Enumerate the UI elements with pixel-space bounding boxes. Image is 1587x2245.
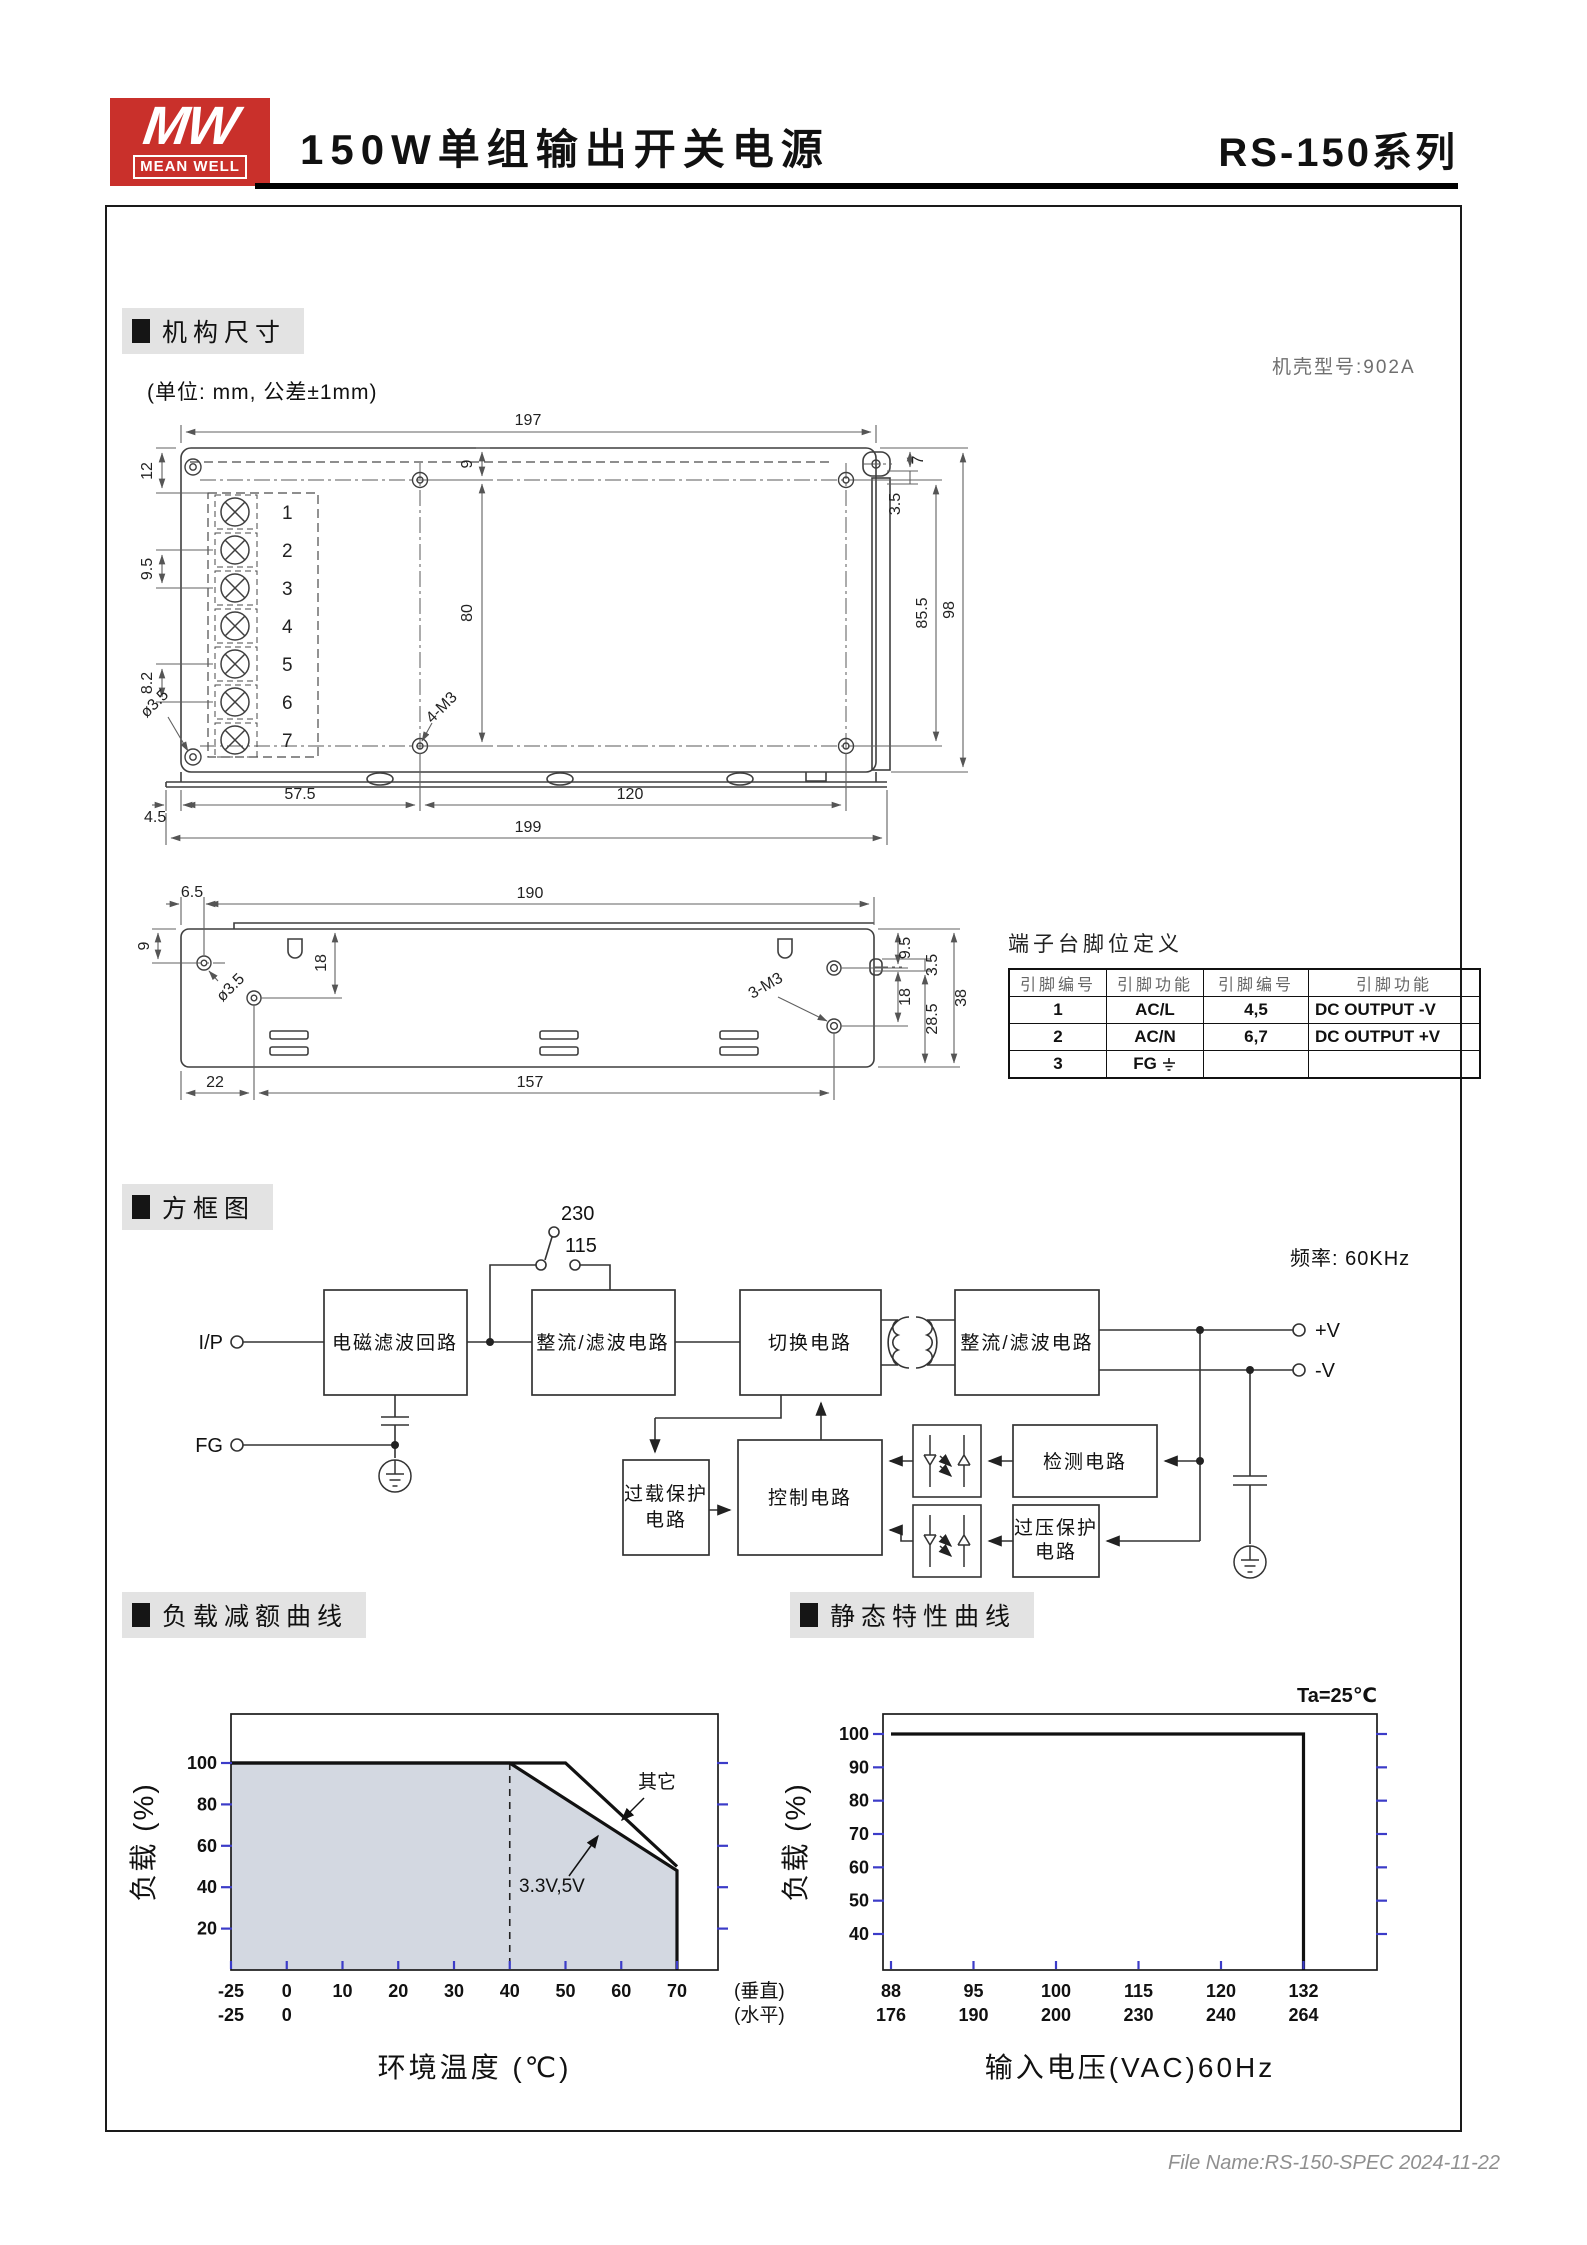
svg-text:100: 100	[839, 1724, 869, 1744]
block-ovp-label2: 电路	[1035, 1541, 1077, 1563]
svg-text:50: 50	[849, 1891, 869, 1911]
mechanical-drawing-top: 1 2 3 4 5 6 7	[130, 405, 990, 875]
pin-cell	[1309, 1051, 1481, 1079]
svg-text:264: 264	[1288, 2005, 1318, 2025]
svg-text:30: 30	[444, 1981, 464, 2001]
svg-text:环境温度 (℃): 环境温度 (℃)	[378, 2052, 572, 2083]
pin-cell: 1	[1009, 997, 1107, 1024]
svg-text:-25: -25	[218, 1981, 244, 2001]
dim-9-5: 9.5	[139, 558, 156, 580]
svg-text:0: 0	[282, 2005, 292, 2025]
block-control-label: 控制电路	[768, 1487, 852, 1509]
dim-157: 157	[517, 1074, 544, 1091]
svg-text:80: 80	[849, 1791, 869, 1811]
dim-57-5: 57.5	[284, 786, 315, 803]
optocoupler-icon	[913, 1505, 981, 1577]
pin-cell-fg: FG	[1107, 1051, 1204, 1079]
pin-table-title: 端子台脚位定义	[1008, 928, 1481, 958]
optocoupler-icon	[913, 1425, 981, 1497]
section-mech-title: 机构尺寸	[162, 313, 286, 349]
pin-cell: DC OUTPUT -V	[1309, 997, 1481, 1024]
svg-text:60: 60	[197, 1836, 217, 1856]
svg-text:100: 100	[187, 1753, 217, 1773]
dimension-labels-side: 6.5 190 9 18 ø3.5 3-M3 9.5 18 3.5 28.5 3…	[136, 885, 970, 1091]
block-switching-label: 切换电路	[768, 1332, 852, 1354]
svg-text:40: 40	[197, 1877, 217, 1897]
pin-table: 引脚编号 引脚功能 引脚编号 引脚功能 1 AC/L 4,5 DC OUTPUT…	[1008, 968, 1481, 1079]
dim-38: 38	[953, 989, 970, 1007]
pin-table-header: 引脚功能	[1107, 969, 1204, 997]
vminus-label: -V	[1315, 1360, 1336, 1382]
svg-text:70: 70	[849, 1824, 869, 1844]
mech-unit-note: (单位: mm, 公差±1mm)	[147, 376, 378, 406]
svg-text:120: 120	[1206, 1981, 1236, 2001]
dim-9-5-side: 9.5	[897, 937, 914, 959]
header-rule	[255, 183, 1458, 189]
svg-text:10: 10	[332, 1981, 352, 2001]
series-title: RS-150系列	[1218, 120, 1458, 178]
block-detect-label: 检测电路	[1043, 1451, 1127, 1473]
block-ovp-label1: 过压保护	[1014, 1517, 1098, 1539]
svg-text:90: 90	[849, 1757, 869, 1777]
svg-text:240: 240	[1206, 2005, 1236, 2025]
svg-text:200: 200	[1041, 2005, 1071, 2025]
svg-text:132: 132	[1288, 1981, 1318, 2001]
pin-cell: DC OUTPUT +V	[1309, 1024, 1481, 1051]
pin-cell: AC/N	[1107, 1024, 1204, 1051]
dim-85-5: 85.5	[914, 597, 931, 628]
dim-7: 7	[910, 455, 927, 464]
svg-text:190: 190	[958, 2005, 988, 2025]
fg-label: FG	[1133, 1054, 1157, 1073]
dim-22: 22	[206, 1074, 224, 1091]
svg-text:50: 50	[555, 1981, 575, 2001]
terminal-number: 5	[282, 655, 293, 676]
block-overload-label1: 过载保护	[624, 1483, 708, 1505]
earth-ground-icon	[1234, 1546, 1266, 1578]
svg-text:80: 80	[197, 1794, 217, 1814]
svg-text:负载 (%): 负载 (%)	[128, 1782, 159, 1901]
dim-197: 197	[515, 412, 542, 429]
dim-80: 80	[459, 604, 476, 622]
case-outline-side	[181, 923, 882, 1067]
svg-text:100: 100	[1041, 1981, 1071, 2001]
center-lines	[200, 463, 892, 763]
svg-text:60: 60	[611, 1981, 631, 2001]
svg-text:60: 60	[849, 1857, 869, 1877]
dim-hole-callout-side: ø3.5	[213, 970, 248, 1005]
svg-text:88: 88	[881, 1981, 901, 2001]
svg-text:176: 176	[876, 2005, 906, 2025]
transformer-icon	[888, 1317, 937, 1368]
terminal-number: 1	[282, 503, 293, 524]
mechanical-drawing-side: 6.5 190 9 18 ø3.5 3-M3 9.5 18 3.5 28.5 3…	[130, 885, 1010, 1120]
meanwell-logo: MW MEAN WELL	[110, 98, 270, 186]
pin-table-wrap: 端子台脚位定义 引脚编号 引脚功能 引脚编号 引脚功能 1 AC/L 4,5 D…	[1008, 928, 1481, 1079]
derating-chart-svg: 20406080100-25-250010203040506070(垂直)(水平…	[95, 1580, 795, 2130]
earth-ground-icon	[1161, 1057, 1177, 1071]
pin-table-header: 引脚编号	[1204, 969, 1309, 997]
terminal-number: 7	[282, 731, 293, 752]
svg-text:40: 40	[500, 1981, 520, 2001]
fg-label: FG	[195, 1435, 223, 1457]
dim-9-side: 9	[136, 941, 153, 950]
dim-18-right: 18	[897, 988, 914, 1006]
dim-4-5: 4.5	[144, 809, 166, 826]
dim-120: 120	[617, 786, 644, 803]
svg-text:95: 95	[963, 1981, 983, 2001]
block-emi-label: 电磁滤波回路	[332, 1332, 458, 1354]
svg-text:20: 20	[197, 1919, 217, 1939]
center-lines-side	[188, 963, 902, 967]
pin-cell: 4,5	[1204, 997, 1309, 1024]
vplus-label: +V	[1315, 1320, 1341, 1342]
switch-230-label: 230	[561, 1203, 594, 1225]
terminal-number: 3	[282, 579, 293, 600]
pin-cell	[1204, 1051, 1309, 1079]
dim-199: 199	[515, 819, 542, 836]
terminal-number: 4	[282, 617, 293, 638]
section-marker-icon	[132, 319, 150, 343]
svg-text:0: 0	[282, 1981, 292, 2001]
dim-3-5-side: 3.5	[924, 954, 941, 976]
dim-8-2: 8.2	[139, 672, 156, 694]
pin-cell: AC/L	[1107, 997, 1204, 1024]
switch-115-label: 115	[565, 1235, 597, 1257]
pin-table-header: 引脚编号	[1009, 969, 1107, 997]
svg-text:40: 40	[849, 1924, 869, 1944]
svg-text:其它: 其它	[638, 1771, 676, 1793]
pin-cell: 3	[1009, 1051, 1107, 1079]
terminal-number: 6	[282, 693, 293, 714]
svg-text:230: 230	[1123, 2005, 1153, 2025]
svg-text:-25: -25	[218, 2005, 244, 2025]
static-chart-svg: 4050607080901008817695190100200115230120…	[770, 1580, 1470, 2130]
dim-9: 9	[459, 459, 476, 468]
dim-190: 190	[517, 885, 544, 902]
terminal-number: 2	[282, 541, 293, 562]
dim-3-5: 3.5	[887, 493, 904, 515]
logo-brand-text: MEAN WELL	[133, 155, 247, 179]
case-outline	[166, 448, 890, 787]
logo-mw-icon: MW	[140, 98, 240, 154]
svg-text:Ta=25℃: Ta=25℃	[1297, 1685, 1377, 1707]
pin-cell: 6,7	[1204, 1024, 1309, 1051]
earth-ground-icon	[379, 1460, 411, 1492]
page-title: 150W单组输出开关电源	[300, 116, 830, 177]
case-model-note: 机壳型号:902A	[1272, 352, 1416, 379]
block-rectifier2-label: 整流/滤波电路	[960, 1332, 1093, 1354]
pin-table-header: 引脚功能	[1309, 969, 1481, 997]
dim-12: 12	[139, 462, 156, 480]
section-mech-header: 机构尺寸	[122, 308, 304, 354]
freq-note: 频率: 60KHz	[1290, 1247, 1410, 1270]
block-rectifier1-label: 整流/滤波电路	[536, 1332, 669, 1354]
terminal-block: 1 2 3 4 5 6 7	[215, 495, 293, 757]
footer-file-note: File Name:RS-150-SPEC 2024-11-22	[1000, 2152, 1500, 2175]
dim-screw-callout: 4-M3	[423, 689, 461, 727]
datasheet-page: MW MEAN WELL 150W单组输出开关电源 RS-150系列 机构尺寸 …	[0, 0, 1587, 2245]
block-overload-label2: 电路	[645, 1509, 687, 1531]
dim-28-5: 28.5	[924, 1003, 941, 1034]
dim-6-5: 6.5	[181, 885, 203, 901]
dimension-lines-side	[152, 897, 960, 1100]
svg-text:3.3V,5V: 3.3V,5V	[519, 1876, 585, 1897]
ip-label: I/P	[199, 1332, 223, 1354]
svg-text:输入电压(VAC)60Hz: 输入电压(VAC)60Hz	[985, 2052, 1276, 2083]
svg-text:70: 70	[667, 1981, 687, 2001]
svg-text:115: 115	[1124, 1981, 1153, 2001]
svg-text:20: 20	[388, 1981, 408, 2001]
pin-cell: 2	[1009, 1024, 1107, 1051]
dim-18-left: 18	[313, 954, 330, 972]
holes-side	[197, 956, 841, 1033]
svg-text:负载 (%): 负载 (%)	[780, 1782, 811, 1901]
dim-98: 98	[941, 601, 958, 619]
